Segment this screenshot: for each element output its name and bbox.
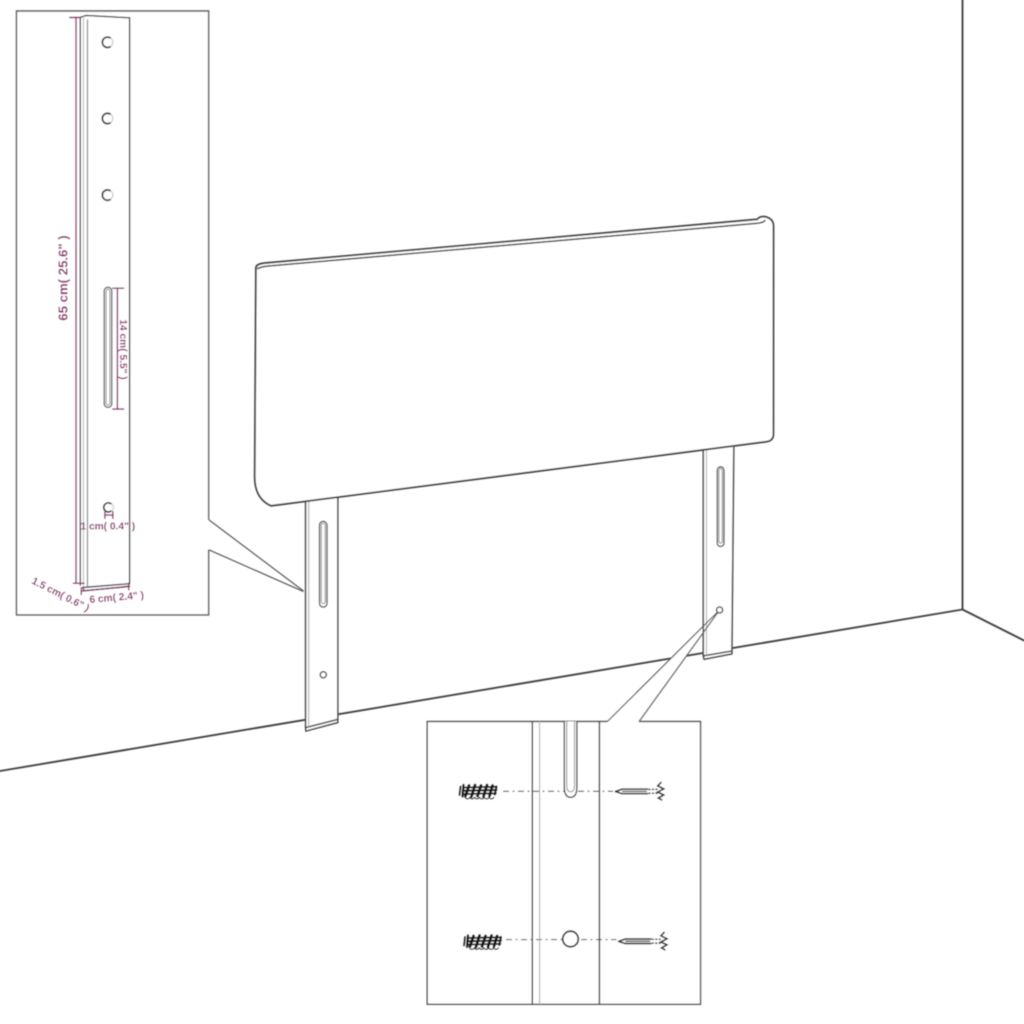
svg-text:14 cm( 5.5" ): 14 cm( 5.5" ) — [117, 319, 128, 379]
svg-text:1 cm( 0.4" ): 1 cm( 0.4" ) — [80, 522, 135, 533]
svg-text:65 cm( 25.6" ): 65 cm( 25.6" ) — [56, 235, 71, 320]
